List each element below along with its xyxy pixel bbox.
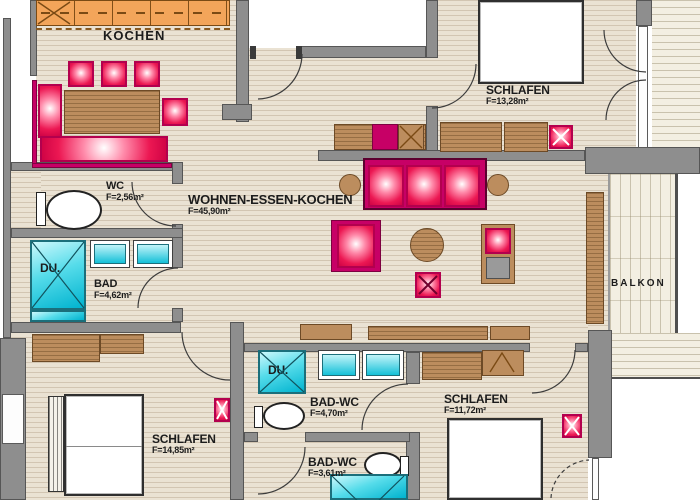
dresser [32,334,100,362]
lowboard [368,326,488,340]
room-area-schlafen-tr: F=13,28m² [486,97,528,106]
sofa-cushion [444,165,480,207]
balcony-right [608,174,678,333]
coffee-table [410,228,444,262]
washbasin [133,240,173,268]
kitchen-bench-horizontal [40,136,168,162]
washbasin [318,350,360,380]
door-post [250,46,256,59]
door-post [296,46,302,59]
room-label-du-badwc: DU. [268,364,288,376]
dresser [422,352,482,380]
red-x-box [562,414,582,438]
armchair-cushion [337,224,375,268]
ottoman-x [415,272,441,298]
bed-headboard [48,396,64,492]
kitchen-chair [101,61,127,87]
room-area-badwc-upper: F=4,70m² [310,409,348,418]
entry-area [249,0,426,48]
chest [504,122,548,152]
chair-right-cushion [485,228,511,254]
room-label-kochen: KOCHEN [103,29,165,42]
wall-right-bottom-thick [588,330,612,458]
wall-left-thin [3,18,11,338]
wall-bathroom-divider-b [305,432,410,442]
sofa-cushion [406,165,442,207]
tub-bad [30,310,86,322]
floor-plan: KOCHEN SCHLAFEN F=13,28m² WC F=2,56m² WO… [0,0,700,500]
red-x-box [214,398,230,422]
lowboard [300,324,352,340]
room-area-badwc-lower: F=3,61m² [308,469,346,478]
wall-corridor-c [172,308,183,322]
wall-bedroom-br-top-stub [575,343,588,352]
room-area-schlafen-bl: F=14,85m² [152,446,194,455]
bench-frame-bottom [32,163,172,168]
kitchen-chair [162,98,188,126]
bed-divider-line [66,446,142,447]
room-label-badwc-upper: BAD-WC [310,396,359,408]
wall-band-top-right [585,147,700,174]
kitchen-chair [134,61,160,87]
room-label-wc: WC [106,181,124,192]
bed-bottom-left [64,394,144,496]
bed-top-right [478,0,584,84]
toilet-tank [254,406,263,428]
dresser [440,122,502,152]
sofa-cushion [368,165,404,207]
wall-bedroom-tr-left-a [426,0,438,58]
room-label-bad: BAD [94,279,117,290]
window-left-bedroom [2,394,24,444]
wall-entry-foot [222,104,252,120]
wall-corridor-a [172,162,183,184]
window-bedroom-tr [638,26,648,148]
chest [100,334,144,354]
wall-bathroom-divider-a [244,432,258,442]
red-x-box [549,125,573,149]
room-label-du-bad: DU. [40,262,60,274]
wall-bathroom-right-a [406,352,420,384]
bed-bottom-right [447,418,543,500]
counter-handles [41,12,225,14]
bench-frame-left [32,80,37,168]
room-label-schlafen-br: SCHLAFEN [444,393,508,405]
wall-mid-left [11,322,181,333]
room-label-badwc-lower: BAD-WC [308,456,357,468]
wall-bedroom-tr-left-b [426,106,438,152]
room-area-wohnen: F=45,90m² [188,207,230,216]
balcony-bottom-right [612,333,700,379]
washbasin [90,240,130,268]
stove-box [486,257,510,279]
side-table [487,174,509,196]
room-label-balkon: BALKON [611,279,666,289]
wardrobe [482,350,524,376]
kitchen-chair [68,61,94,87]
room-label-wohnen: WOHNEN-ESSEN-KOCHEN [188,193,352,206]
room-label-schlafen-tr: SCHLAFEN [486,84,550,96]
toilet-bowl [46,190,102,230]
room-label-schlafen-bl: SCHLAFEN [152,433,216,445]
toilet-tank [36,192,46,226]
kitchen-counter [36,0,230,26]
window-bedroom-br [592,458,599,500]
room-area-wc: F=2,56m² [106,193,144,202]
toilet-bowl [263,402,305,430]
kitchen-bench-vertical [38,84,62,138]
sideboard-magenta-box [372,124,398,150]
wall-entry-bottom [300,46,426,58]
sideboard-x-box [398,124,424,150]
kitchen-table [64,90,160,134]
balcony-top-right [652,0,700,147]
toilet-tank [400,456,409,476]
lowboard [490,326,530,340]
shelf-right-wall [586,192,604,324]
wall-right-top [636,0,652,26]
room-area-schlafen-br: F=11,72m² [444,406,486,415]
shower-bad [30,240,86,310]
wall-wc-bad-divider [11,228,183,238]
wall-bedroom-bl-right [230,322,244,500]
washbasin [362,350,404,380]
room-area-bad: F=4,62m² [94,291,132,300]
sofa [363,158,487,210]
